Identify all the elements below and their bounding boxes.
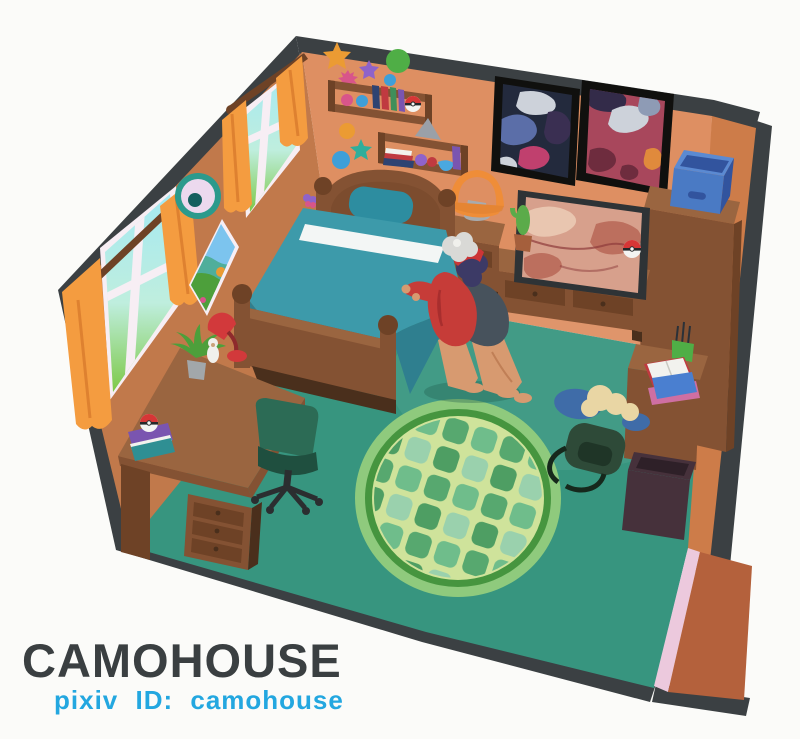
trash-bin (622, 452, 696, 540)
circle-sticker-green (386, 49, 410, 73)
round-rug (355, 399, 561, 597)
isometric-room-illustration (0, 0, 800, 739)
book-stack (383, 148, 414, 168)
yarn-ball-pink (341, 94, 353, 106)
poster-left (491, 76, 580, 186)
circle-sticker-orange (339, 123, 355, 139)
wall-clock-decoration (175, 173, 221, 219)
pokeball-desk (140, 414, 158, 432)
circle-sticker-blue (332, 151, 350, 169)
pokeball-tv-stand (623, 240, 641, 258)
figurine (207, 338, 219, 363)
poster-right (576, 80, 674, 196)
ball-on-shelf (384, 74, 396, 86)
book-leaning (452, 146, 461, 170)
yarn-ball-red (427, 157, 437, 167)
artist-name: CAMOHOUSE (0, 636, 420, 685)
yarn-ball-blue (356, 95, 368, 107)
yarn-ball-purple (415, 154, 427, 166)
storage-bin (670, 150, 734, 214)
caption-block: CAMOHOUSE pixiv ID: camohouse (0, 636, 420, 716)
credit-line: pixiv ID: camohouse (0, 685, 420, 716)
pokeball-shelf (405, 96, 421, 112)
artwork-canvas: CAMOHOUSE pixiv ID: camohouse (0, 0, 800, 739)
